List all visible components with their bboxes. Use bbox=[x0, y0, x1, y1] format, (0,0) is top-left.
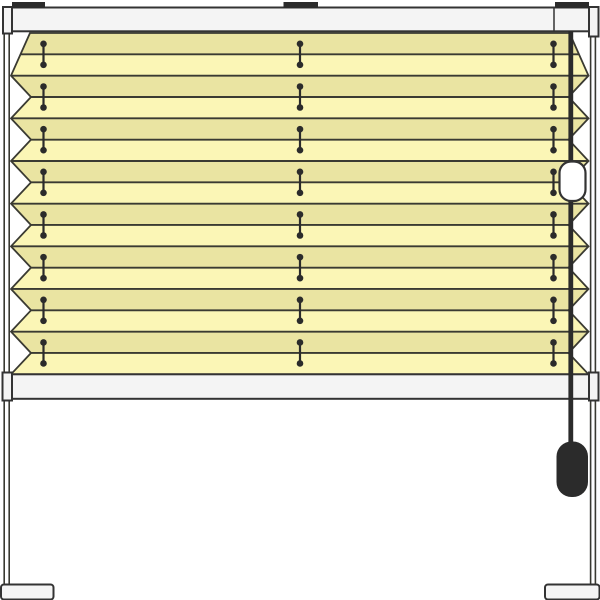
stitch-dot bbox=[297, 232, 304, 239]
lift-cord bbox=[568, 31, 573, 442]
stitch-dot bbox=[40, 254, 47, 261]
bracket-right-icon bbox=[555, 2, 589, 8]
stitch-dot bbox=[40, 126, 47, 133]
stitch-dot bbox=[40, 360, 47, 367]
cord-lock-capsule bbox=[560, 162, 586, 202]
stitch-dot bbox=[297, 254, 304, 261]
left-post-cap bbox=[3, 373, 13, 401]
bottom-rail bbox=[12, 374, 589, 399]
stitch-dot bbox=[40, 318, 47, 325]
stitch-dot bbox=[40, 275, 47, 282]
stitch-dot bbox=[297, 318, 304, 325]
stitch-dot bbox=[550, 297, 557, 304]
stitch-dot bbox=[297, 360, 304, 367]
stitch-dot bbox=[297, 275, 304, 282]
stitch-dot bbox=[550, 254, 557, 261]
stitch-dot bbox=[297, 83, 304, 90]
stitch-dot bbox=[40, 169, 47, 176]
cord-tassel bbox=[557, 442, 589, 498]
stitch-dot bbox=[297, 211, 304, 218]
bracket-left-icon bbox=[12, 2, 45, 8]
stitch-dot bbox=[40, 41, 47, 48]
stitch-dot bbox=[550, 169, 557, 176]
stitch-dot bbox=[550, 147, 557, 154]
stitch-dot bbox=[40, 211, 47, 218]
right-leg bbox=[591, 36, 596, 585]
left-foot bbox=[1, 585, 54, 600]
stitch-dot bbox=[297, 104, 304, 111]
stitch-dot bbox=[297, 126, 304, 133]
head-rail-group bbox=[3, 2, 599, 37]
stitch-dot bbox=[40, 104, 47, 111]
left-leg bbox=[4, 33, 9, 585]
stitch-dot bbox=[297, 147, 304, 154]
stitch-dot bbox=[40, 190, 47, 197]
stitch-dot bbox=[550, 62, 557, 69]
stitch-dot bbox=[550, 360, 557, 367]
stitch-dot bbox=[550, 318, 557, 325]
stitch-dot bbox=[40, 232, 47, 239]
stitch-dot bbox=[297, 169, 304, 176]
stitch-dot bbox=[550, 126, 557, 133]
bracket-middle-icon bbox=[284, 2, 319, 8]
stitch-dot bbox=[40, 83, 47, 90]
stitch-dot bbox=[550, 104, 557, 111]
stitch-dot bbox=[550, 211, 557, 218]
right-foot bbox=[545, 585, 600, 600]
stitch-dot bbox=[297, 297, 304, 304]
stitch-dot bbox=[550, 190, 557, 197]
stitch-dot bbox=[550, 339, 557, 346]
head-rail bbox=[12, 8, 589, 32]
right-post-top bbox=[589, 7, 599, 37]
right-post-cap bbox=[589, 373, 599, 401]
stitch-dot bbox=[550, 232, 557, 239]
stitch-dot bbox=[40, 297, 47, 304]
stitch-dot bbox=[550, 41, 557, 48]
stitch-dot bbox=[40, 339, 47, 346]
left-post-top bbox=[3, 7, 12, 34]
stitch-dot bbox=[550, 83, 557, 90]
pleated-blind-illustration bbox=[0, 0, 600, 600]
stitch-dot bbox=[297, 62, 304, 69]
stitch-dot bbox=[40, 62, 47, 69]
stitch-dot bbox=[297, 190, 304, 197]
bottom-rail-group bbox=[3, 373, 599, 401]
stitch-dot bbox=[297, 41, 304, 48]
stitch-dot bbox=[550, 275, 557, 282]
stitch-dot bbox=[297, 339, 304, 346]
stitch-dot bbox=[40, 147, 47, 154]
